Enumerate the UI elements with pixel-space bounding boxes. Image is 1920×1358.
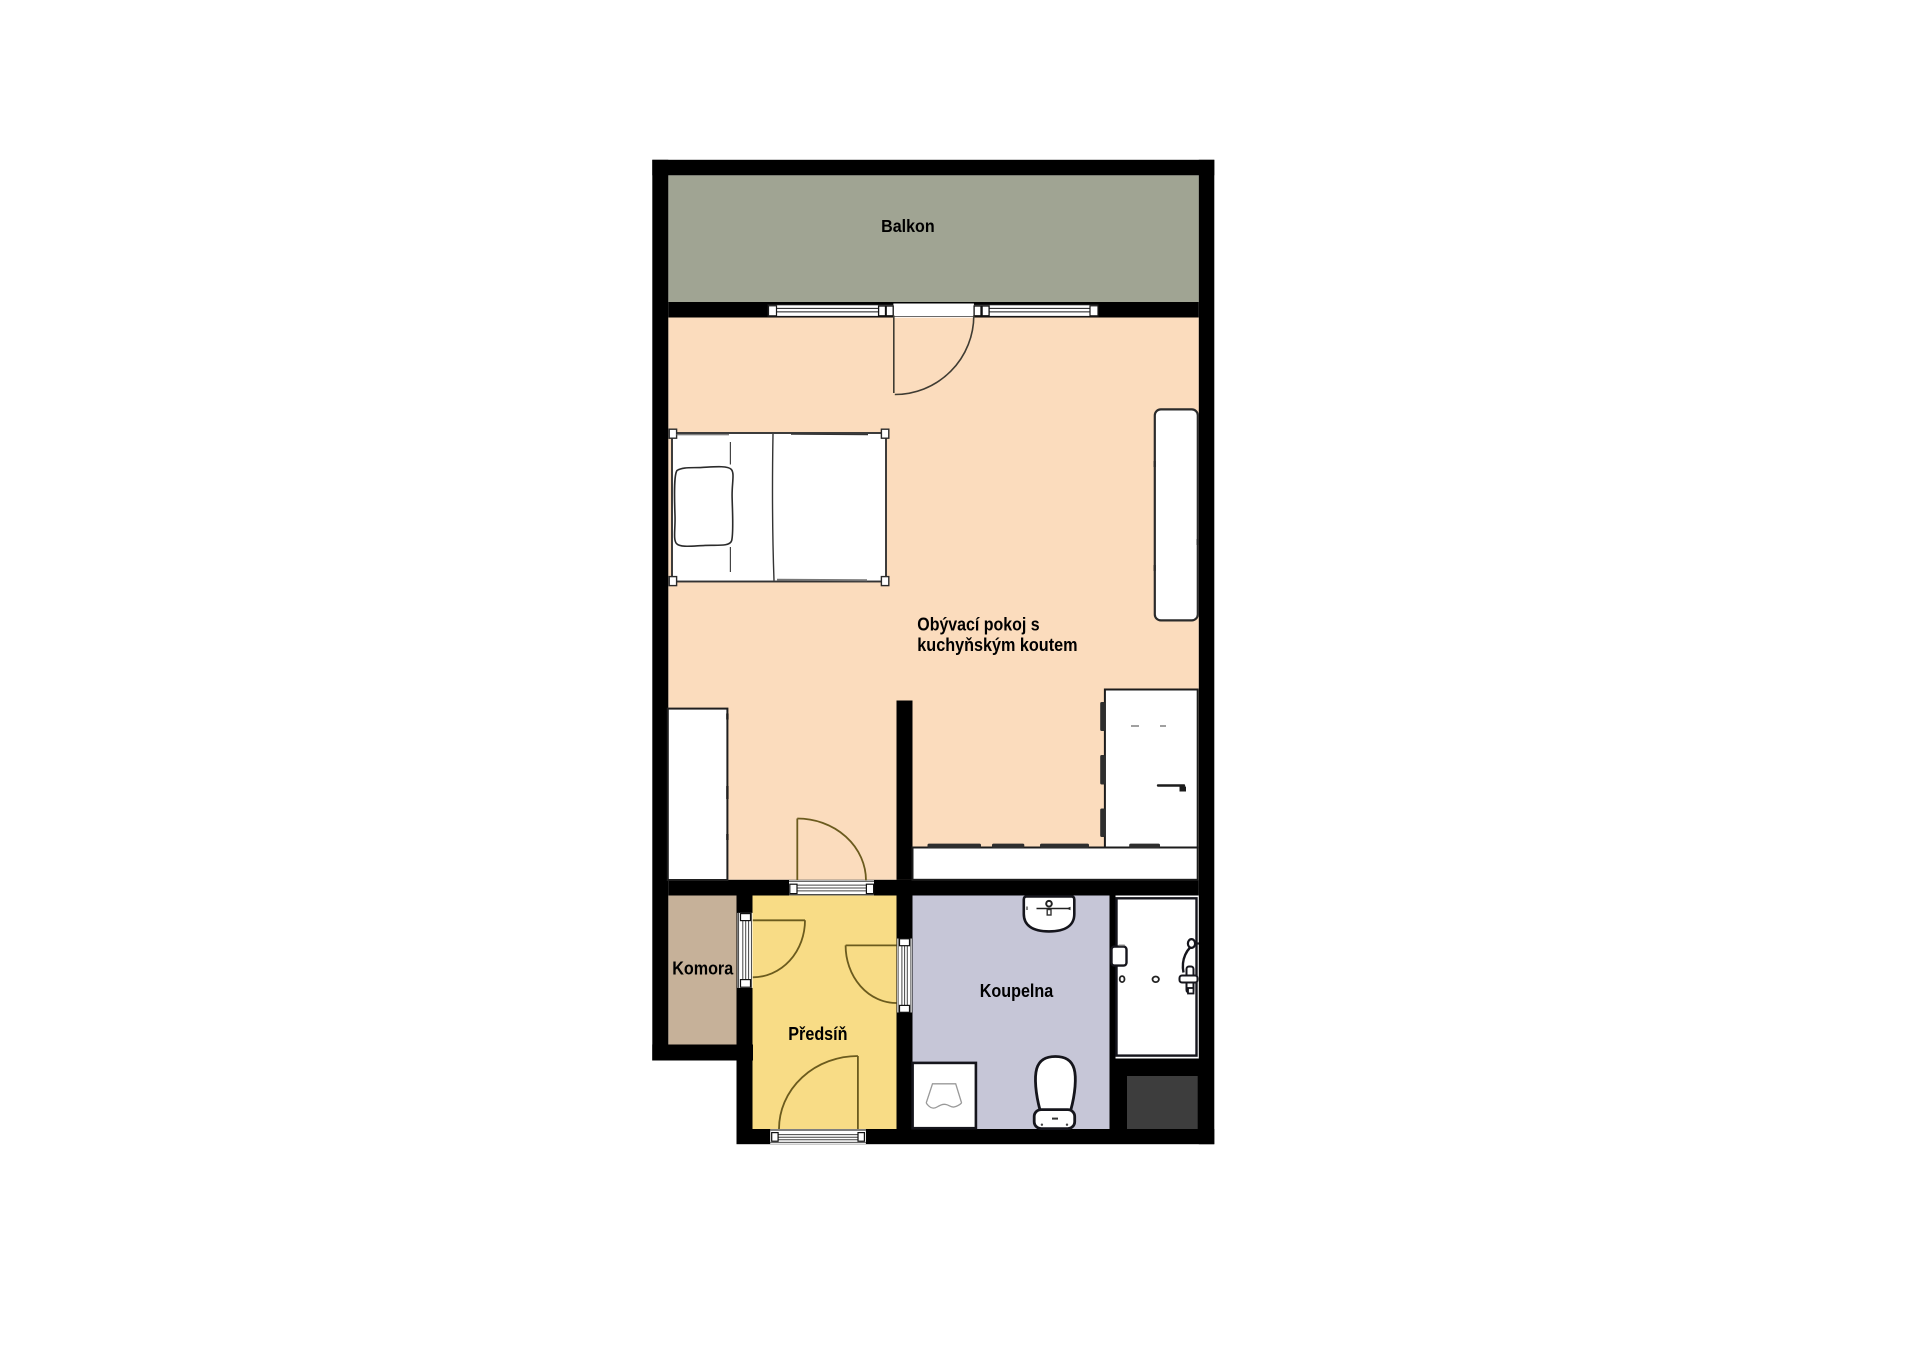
svg-text:Balkon: Balkon — [881, 216, 935, 236]
svg-text:kuchyňským koutem: kuchyňským koutem — [917, 635, 1077, 656]
svg-text:Obývací pokoj s: Obývací pokoj s — [917, 615, 1039, 636]
svg-text:Komora: Komora — [672, 959, 733, 980]
svg-text:Předsíň: Předsíň — [788, 1024, 847, 1045]
svg-text:Koupelna: Koupelna — [980, 981, 1054, 1002]
